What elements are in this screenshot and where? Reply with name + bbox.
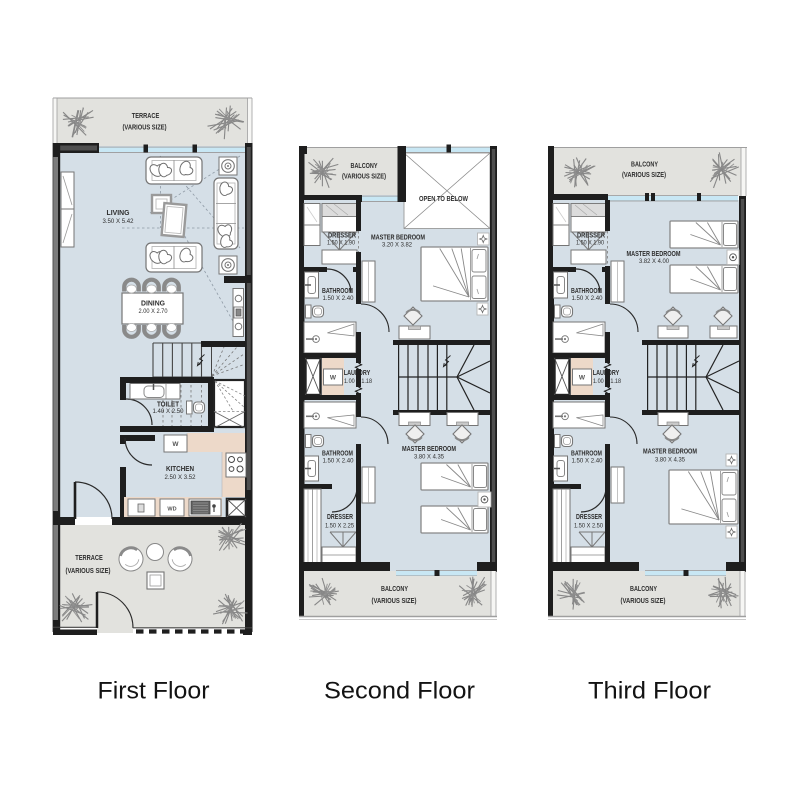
svg-text:KITCHEN: KITCHEN (166, 464, 194, 473)
svg-text:(VARIOUS SIZE): (VARIOUS SIZE) (372, 596, 417, 605)
svg-text:1.50 X 1.90: 1.50 X 1.90 (576, 240, 604, 247)
svg-text:DRESSER: DRESSER (328, 231, 357, 240)
svg-text:2.50 X 3.52: 2.50 X 3.52 (165, 474, 196, 481)
svg-text:OPEN TO BELOW: OPEN TO BELOW (419, 194, 468, 203)
svg-text:1.50 X 2.40: 1.50 X 2.40 (323, 458, 354, 465)
svg-text:(VARIOUS SIZE): (VARIOUS SIZE) (123, 123, 167, 132)
svg-text:1.50 X 2.50: 1.50 X 2.50 (574, 523, 603, 530)
svg-text:2.00 X 2.70: 2.00 X 2.70 (139, 308, 168, 315)
svg-text:1.50 X 2.40: 1.50 X 2.40 (572, 458, 603, 465)
svg-text:Third Floor: Third Floor (588, 678, 711, 705)
svg-text:3.50 X 5.42: 3.50 X 5.42 (103, 218, 134, 225)
svg-text:TERRACE: TERRACE (132, 111, 160, 120)
svg-text:BALCONY: BALCONY (631, 160, 658, 169)
svg-text:First Floor: First Floor (98, 678, 210, 705)
svg-text:MASTER BEDROOM: MASTER BEDROOM (627, 249, 681, 258)
svg-text:W: W (172, 441, 179, 448)
svg-text:TERRACE: TERRACE (75, 553, 103, 562)
svg-text:1.50 X 2.40: 1.50 X 2.40 (572, 295, 603, 302)
svg-text:MASTER BEDROOM: MASTER BEDROOM (371, 233, 425, 242)
svg-text:W: W (579, 375, 586, 382)
svg-text:WD: WD (167, 507, 176, 513)
svg-text:1.50 X 2.25: 1.50 X 2.25 (325, 523, 354, 530)
svg-text:BALCONY: BALCONY (630, 584, 657, 593)
svg-text:BALCONY: BALCONY (351, 161, 378, 170)
svg-text:3.80 X 4.35: 3.80 X 4.35 (414, 454, 444, 461)
svg-text:BATHROOM: BATHROOM (322, 286, 353, 295)
svg-text:DRESSER: DRESSER (577, 231, 606, 240)
svg-text:(VARIOUS SIZE): (VARIOUS SIZE) (66, 566, 111, 575)
svg-text:BALCONY: BALCONY (381, 584, 408, 593)
svg-text:1.50 X 2.40: 1.50 X 2.40 (323, 295, 354, 302)
svg-text:(VARIOUS SIZE): (VARIOUS SIZE) (621, 596, 666, 605)
svg-text:DRESSER: DRESSER (327, 512, 353, 521)
svg-text:1.50 X 1.90: 1.50 X 1.90 (327, 240, 355, 247)
svg-text:DINING: DINING (141, 299, 165, 308)
svg-text:W: W (330, 375, 337, 382)
svg-text:MASTER BEDROOM: MASTER BEDROOM (402, 444, 456, 453)
svg-text:(VARIOUS SIZE): (VARIOUS SIZE) (622, 170, 666, 179)
svg-text:Second Floor: Second Floor (324, 678, 475, 705)
svg-text:LIVING: LIVING (107, 208, 130, 217)
svg-text:3.80 X 4.35: 3.80 X 4.35 (655, 457, 685, 464)
svg-text:MASTER BEDROOM: MASTER BEDROOM (643, 447, 697, 456)
svg-text:BATHROOM: BATHROOM (571, 449, 602, 458)
svg-text:3.82 X 4.00: 3.82 X 4.00 (639, 258, 669, 265)
svg-text:3.20 X 3.82: 3.20 X 3.82 (382, 242, 412, 249)
svg-text:DRESSER: DRESSER (576, 512, 602, 521)
svg-text:(VARIOUS SIZE): (VARIOUS SIZE) (342, 172, 386, 181)
svg-text:BATHROOM: BATHROOM (571, 286, 602, 295)
svg-text:1.40 X 2.50: 1.40 X 2.50 (153, 408, 184, 415)
svg-text:BATHROOM: BATHROOM (322, 449, 353, 458)
